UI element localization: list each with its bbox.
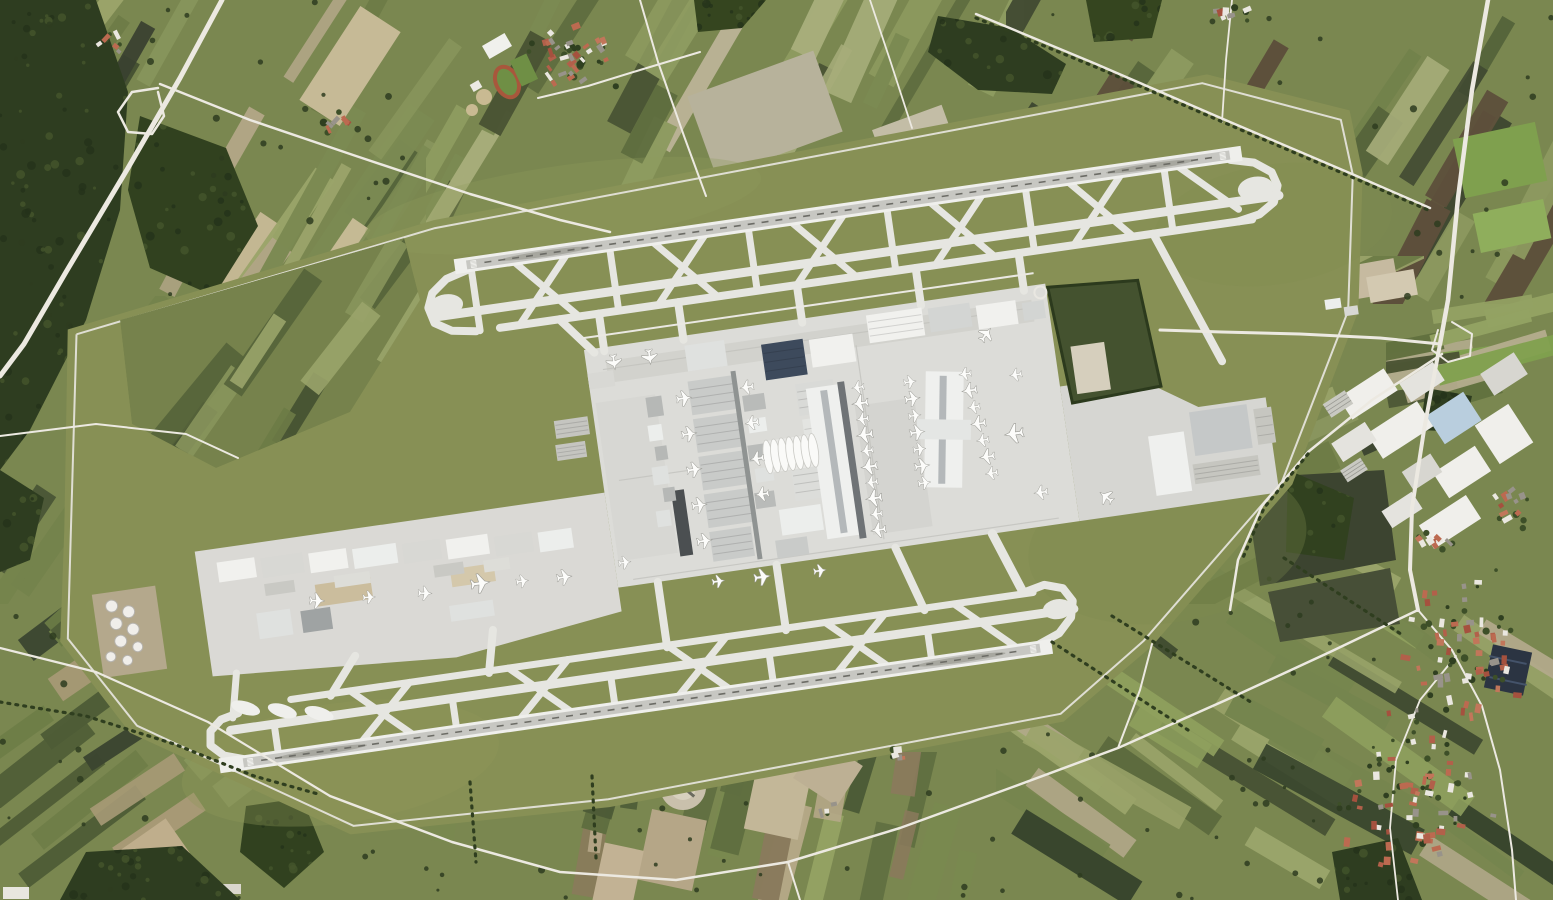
tree (1215, 835, 1219, 839)
satellite-image-viewport (0, 0, 1553, 900)
tree (688, 837, 692, 841)
village-tree (1449, 657, 1456, 664)
village-tree (1439, 546, 1445, 552)
tree (142, 815, 149, 822)
village-tree (1421, 623, 1428, 630)
tree (1526, 75, 1530, 79)
house (1501, 655, 1507, 664)
tree (13, 614, 18, 619)
village-tree (1231, 4, 1238, 11)
tree (362, 854, 368, 860)
tree (1436, 250, 1442, 256)
tree (1261, 756, 1266, 761)
house (1354, 779, 1362, 787)
tree (213, 115, 220, 122)
village-tree (1367, 764, 1372, 769)
village-tree (1497, 625, 1501, 629)
village-tree (1443, 707, 1449, 713)
village-tree (1446, 605, 1450, 609)
village-tree (1461, 654, 1469, 662)
tree (440, 873, 445, 878)
house (1462, 597, 1467, 602)
house (1388, 757, 1396, 761)
building (693, 413, 743, 453)
tree (30, 282, 33, 285)
tree (147, 58, 154, 65)
building (709, 526, 755, 562)
house (1461, 583, 1466, 589)
village-tree (1476, 585, 1479, 588)
tree (424, 866, 429, 871)
tree (374, 181, 379, 186)
village-tree (1435, 795, 1441, 801)
house (1447, 761, 1453, 765)
village-tree (1498, 615, 1504, 621)
tree (1253, 801, 1258, 806)
tree (694, 888, 699, 893)
tree (20, 139, 25, 144)
house (1386, 829, 1390, 835)
house (1473, 637, 1480, 644)
house (1412, 809, 1418, 817)
tree (1414, 230, 1421, 237)
building (256, 609, 293, 640)
village-tree (1494, 568, 1498, 572)
tree (1050, 79, 1057, 86)
tree (1404, 293, 1411, 300)
tree (1240, 787, 1245, 792)
village-tree (1391, 739, 1395, 743)
taxiway (916, 268, 921, 306)
village-tree (336, 109, 342, 115)
tree (1145, 828, 1149, 832)
village-tree (1346, 805, 1351, 810)
building (761, 339, 808, 381)
tree (1501, 179, 1508, 186)
building (688, 375, 738, 415)
house (1457, 634, 1462, 642)
village-tree (1357, 789, 1361, 793)
village-tree (1428, 644, 1433, 649)
land-patch (3, 887, 29, 899)
house (1513, 692, 1522, 698)
tree (1283, 786, 1286, 789)
building (647, 424, 663, 442)
house (1385, 842, 1391, 851)
house (1376, 752, 1381, 757)
aerial-photo-airport (0, 0, 1553, 900)
tree (385, 93, 392, 100)
village-tree (1462, 608, 1468, 614)
building (654, 445, 668, 461)
village-tree (1392, 790, 1396, 794)
village-tree (1376, 756, 1382, 762)
taxiway (678, 302, 683, 340)
tree (759, 873, 763, 877)
village-tree (1338, 802, 1342, 806)
house (1483, 671, 1490, 677)
tree (1077, 873, 1082, 878)
house (1424, 599, 1430, 606)
tree (66, 322, 72, 328)
dirt-patch (1070, 342, 1110, 394)
house (824, 809, 829, 814)
tree (1263, 800, 1270, 807)
house (1421, 681, 1428, 685)
village-tree (1414, 719, 1419, 724)
village-tree (1386, 767, 1392, 773)
village-tree (1444, 742, 1449, 747)
tree (1410, 105, 1417, 112)
tree (1244, 861, 1250, 867)
tree (49, 633, 56, 640)
tree (150, 38, 156, 44)
tree (1291, 765, 1295, 769)
house (1408, 617, 1415, 622)
tree (60, 680, 67, 687)
tree (184, 13, 189, 18)
tree (108, 887, 113, 892)
tree (1229, 611, 1233, 615)
tree (166, 8, 170, 12)
tree (1312, 819, 1315, 822)
tree (1192, 619, 1199, 626)
tree (7, 816, 10, 819)
village-tree (1493, 675, 1498, 680)
tree (1277, 80, 1282, 85)
house (1438, 811, 1448, 816)
tree (82, 822, 86, 826)
building (917, 419, 971, 440)
tree (219, 156, 224, 161)
village-tree (1424, 755, 1430, 761)
tree (367, 197, 371, 201)
village-tree (1520, 517, 1526, 523)
taxiway (1019, 253, 1024, 291)
building (656, 510, 672, 528)
tree (278, 145, 283, 150)
house (1500, 641, 1505, 646)
village-tree (1481, 676, 1486, 681)
tree (1000, 888, 1005, 893)
house (1423, 834, 1431, 844)
tree (1285, 623, 1290, 628)
building (1022, 300, 1046, 321)
village-tree (1412, 730, 1416, 734)
village-tree (1508, 628, 1513, 633)
tree (1529, 93, 1536, 100)
taxiway (797, 285, 802, 323)
house (1386, 710, 1391, 716)
tree (1318, 36, 1323, 41)
house (1438, 679, 1444, 688)
tree (1484, 207, 1489, 212)
house (1495, 685, 1500, 692)
tree (744, 801, 749, 806)
village-tree (1454, 781, 1459, 786)
village-tree (1383, 793, 1389, 799)
house (1371, 821, 1377, 830)
tree (75, 746, 81, 752)
tree (19, 240, 25, 246)
tree (1326, 656, 1329, 659)
tree (564, 895, 568, 899)
tree (46, 21, 52, 27)
tree (926, 790, 932, 796)
house (1431, 744, 1436, 750)
tree (722, 859, 726, 863)
tree (1328, 641, 1332, 645)
land-patch (476, 89, 492, 105)
house (1415, 708, 1418, 712)
tree (1247, 758, 1252, 763)
house (1446, 769, 1452, 776)
tree (354, 126, 361, 133)
building (651, 465, 669, 485)
village-tree (1520, 525, 1526, 531)
tree (382, 178, 389, 185)
house (1429, 735, 1435, 743)
building (662, 487, 676, 503)
tree (14, 57, 18, 61)
tree (1471, 249, 1475, 253)
land-patch (466, 104, 478, 116)
house (1436, 639, 1444, 646)
tree (1317, 877, 1323, 883)
village-tree (527, 49, 532, 54)
tree (1337, 805, 1343, 811)
tree (0, 739, 6, 745)
building (742, 393, 766, 412)
building (1189, 404, 1253, 456)
tree (1210, 19, 1216, 25)
tree (1229, 775, 1235, 781)
village-tree (1444, 751, 1449, 756)
tree (306, 217, 313, 224)
tree (1434, 220, 1441, 227)
village-tree (1457, 649, 1461, 653)
tree (258, 59, 263, 64)
tree (1495, 252, 1500, 257)
tree (260, 140, 266, 146)
tree (1046, 732, 1050, 736)
tree (365, 135, 372, 142)
tree (168, 292, 172, 296)
tree (1377, 762, 1382, 767)
tree (223, 191, 228, 196)
house (1479, 617, 1483, 627)
tree (237, 896, 240, 899)
house (1451, 621, 1459, 627)
house (1373, 771, 1380, 780)
village-tree (1245, 18, 1249, 22)
house (1454, 816, 1458, 821)
house (1407, 782, 1414, 787)
building (698, 450, 748, 490)
tree (1000, 748, 1006, 754)
village-tree (1500, 677, 1506, 683)
village-tree (1413, 822, 1420, 829)
tree (654, 863, 658, 867)
tree (1309, 600, 1314, 605)
house (1436, 828, 1446, 835)
tree (1460, 295, 1464, 299)
tree (961, 893, 966, 898)
building (300, 607, 333, 633)
building (645, 396, 664, 418)
village-tree (1453, 822, 1456, 825)
house (1476, 650, 1483, 656)
house (1432, 590, 1438, 595)
house (1503, 630, 1508, 636)
tree (436, 889, 439, 892)
tree (1325, 748, 1330, 753)
tree (1176, 892, 1182, 898)
village-tree (1423, 530, 1429, 536)
building (704, 488, 754, 528)
tree (400, 155, 405, 160)
tree (845, 866, 850, 871)
tree (990, 837, 995, 842)
house (1384, 857, 1391, 866)
tree (1372, 123, 1378, 129)
tree (48, 313, 52, 317)
tree (1292, 870, 1298, 876)
taxiway (599, 314, 604, 352)
tree (371, 850, 375, 854)
tree (59, 760, 62, 763)
tree (1266, 16, 1271, 21)
village-tree (1406, 738, 1411, 743)
tree (1051, 13, 1054, 16)
village-tree (1420, 786, 1425, 791)
village-tree (1405, 761, 1409, 765)
tree (1078, 797, 1083, 802)
village-tree (1463, 796, 1466, 799)
tree (1297, 613, 1302, 618)
house (1474, 580, 1482, 585)
village-tree (575, 45, 581, 51)
tree (637, 828, 642, 833)
house (1461, 708, 1466, 716)
village-tree (1372, 746, 1375, 749)
village-tree (613, 83, 619, 89)
tree (961, 884, 967, 890)
village-tree (1427, 692, 1433, 698)
house (1343, 837, 1350, 847)
tree (302, 106, 308, 112)
village-tree (529, 40, 535, 46)
tree (321, 93, 325, 97)
village-tree (597, 60, 601, 64)
village-tree (1482, 627, 1489, 634)
house (1406, 815, 1412, 820)
village-tree (1342, 867, 1350, 875)
tree (77, 776, 84, 783)
tree (659, 805, 665, 811)
house (1437, 657, 1442, 663)
tree (1372, 658, 1376, 662)
tree (211, 173, 216, 178)
